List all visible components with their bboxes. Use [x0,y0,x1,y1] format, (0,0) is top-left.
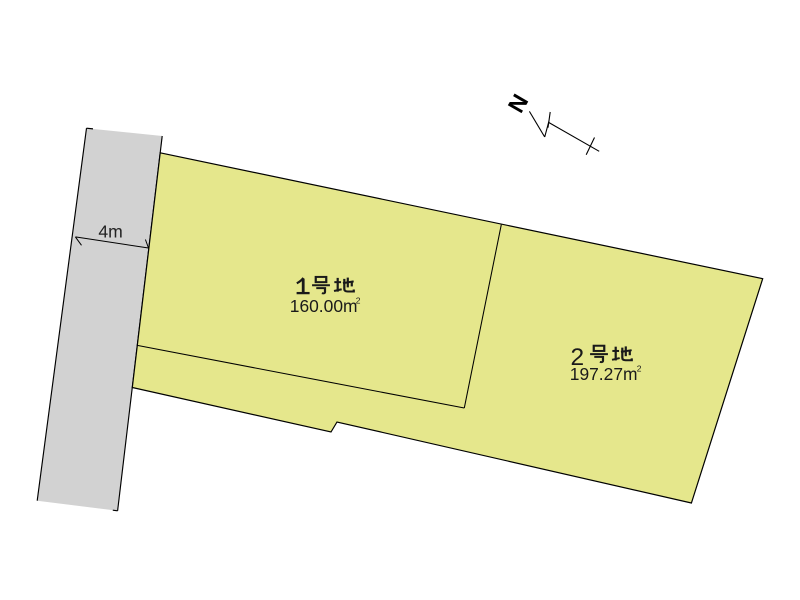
svg-text:4m: 4m [98,222,122,242]
svg-text:197.27m: 197.27m [570,364,638,384]
svg-text:2: 2 [356,296,361,306]
svg-text:2: 2 [637,363,642,373]
svg-text:160.00m: 160.00m [290,296,358,316]
